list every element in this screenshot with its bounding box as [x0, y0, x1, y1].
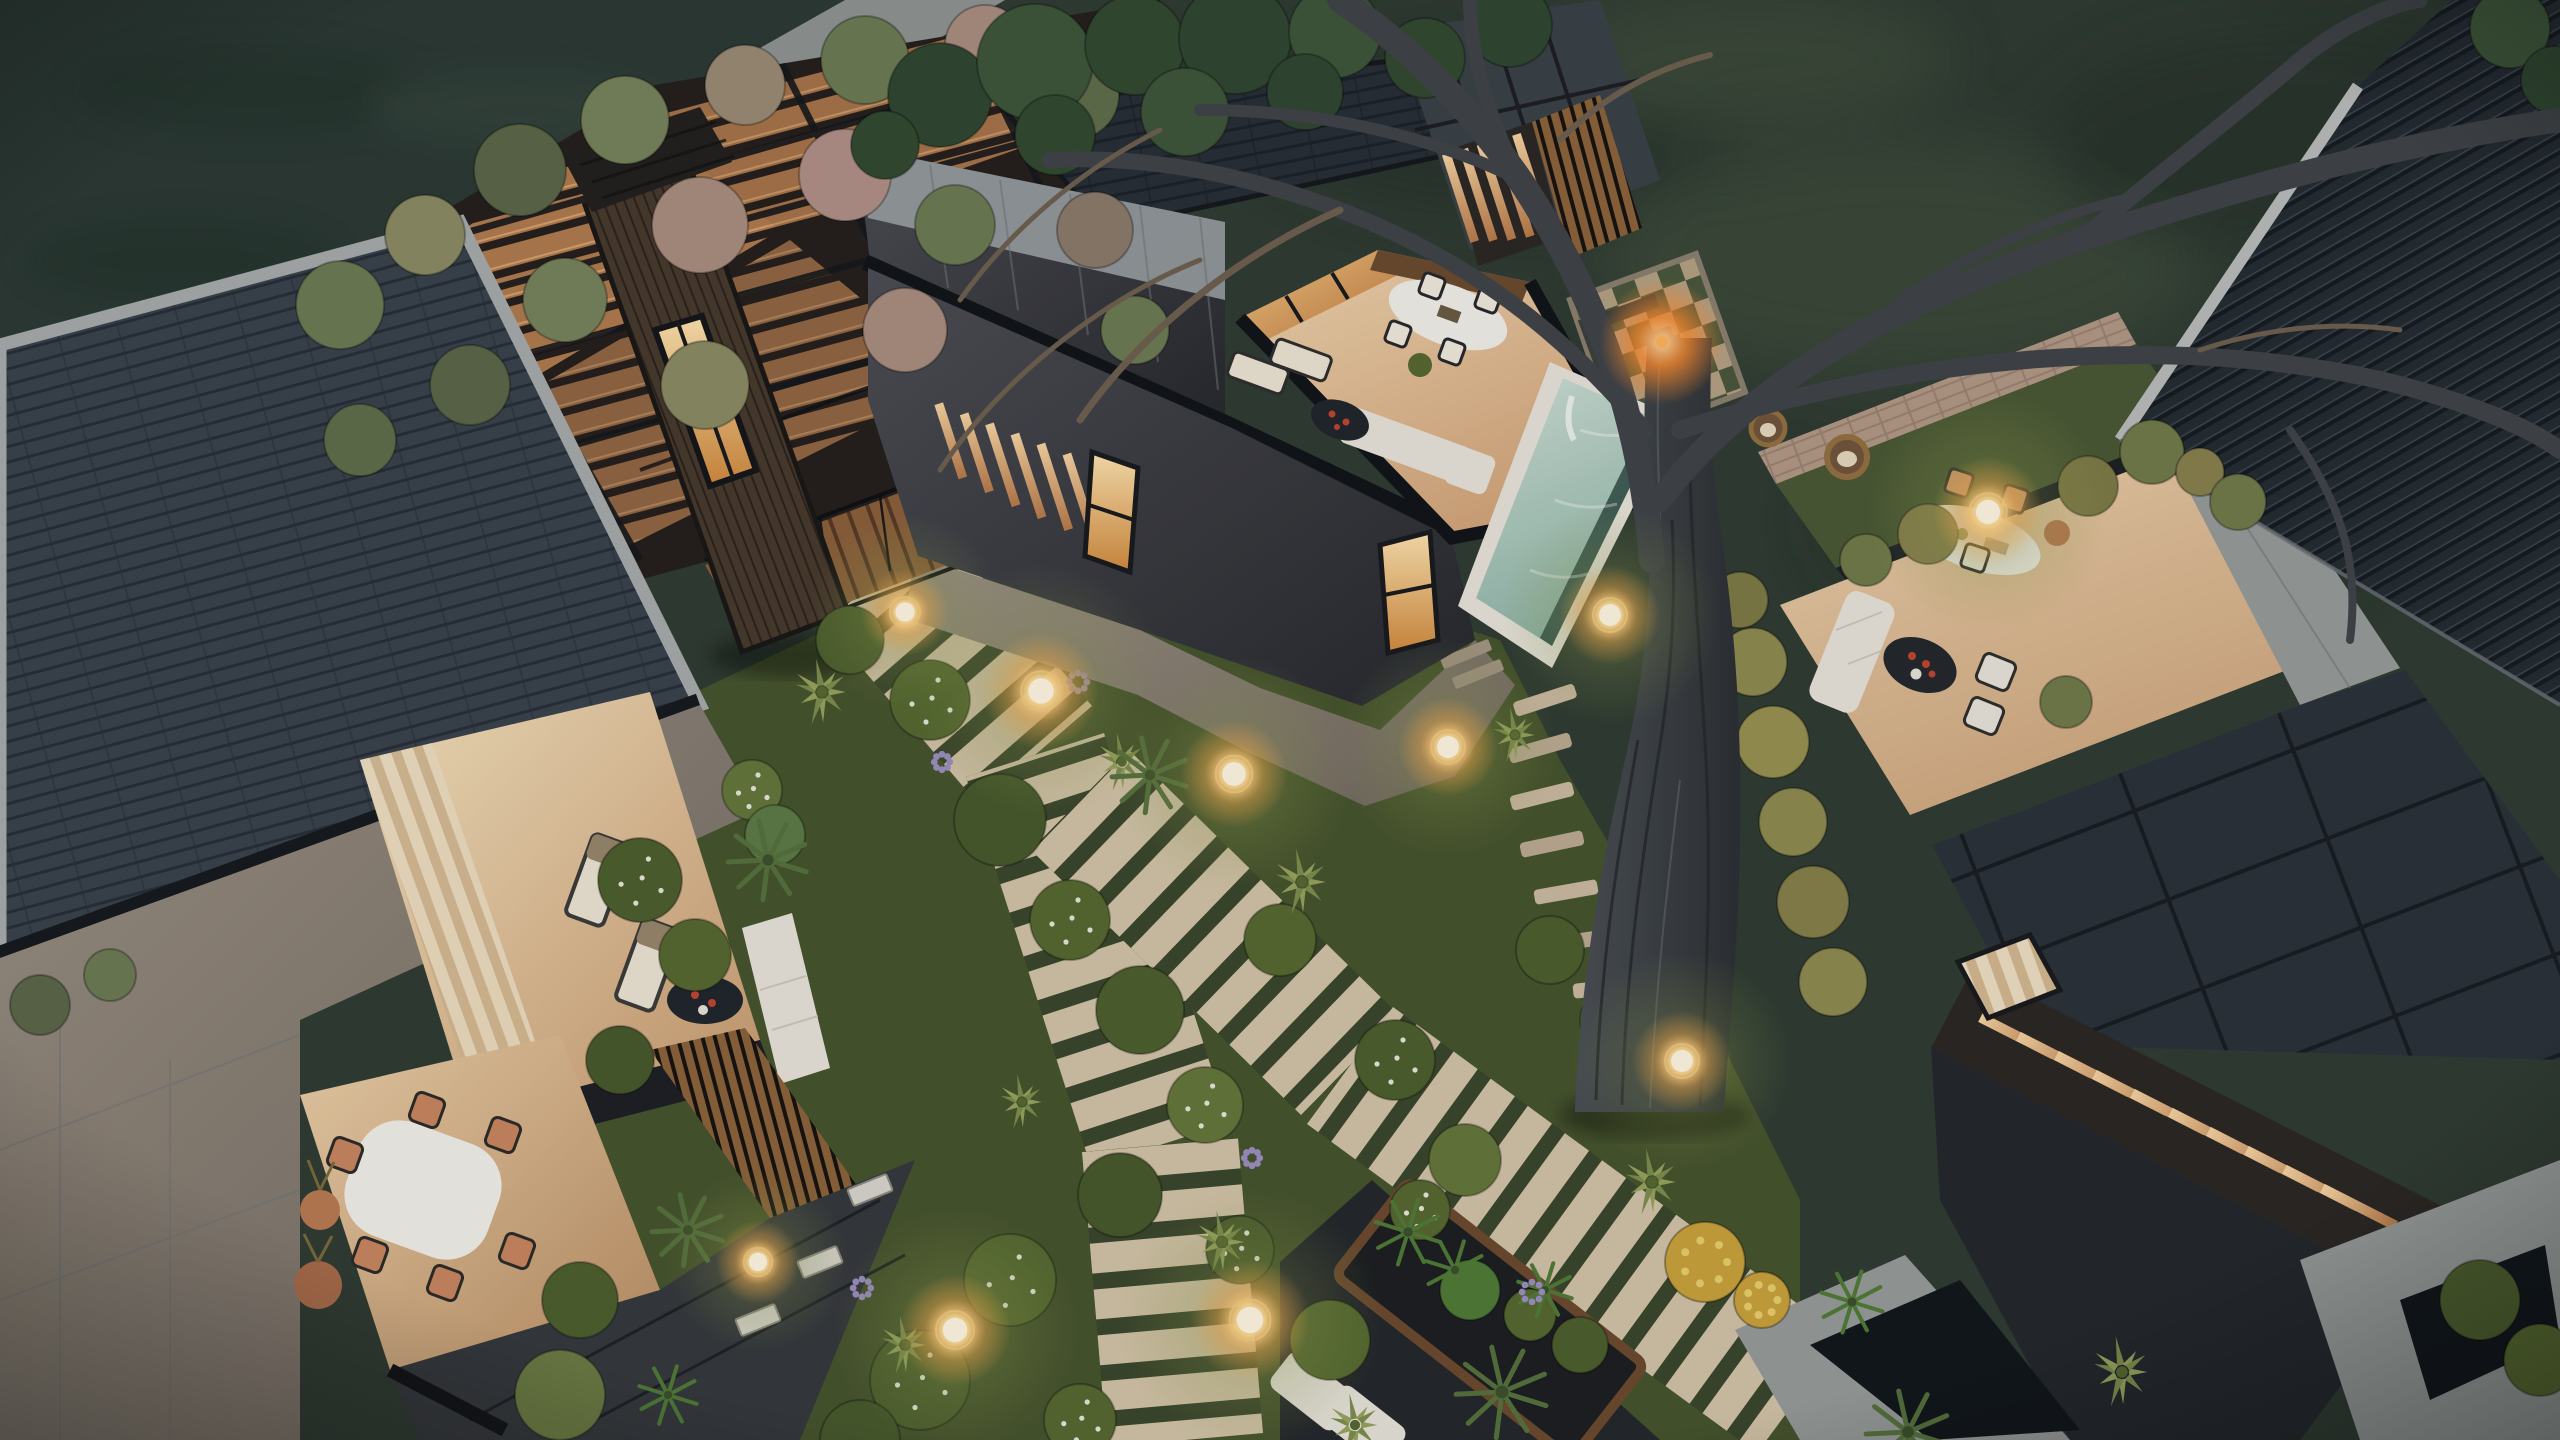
vignette [0, 0, 2560, 1440]
render-canvas [0, 0, 2560, 1440]
